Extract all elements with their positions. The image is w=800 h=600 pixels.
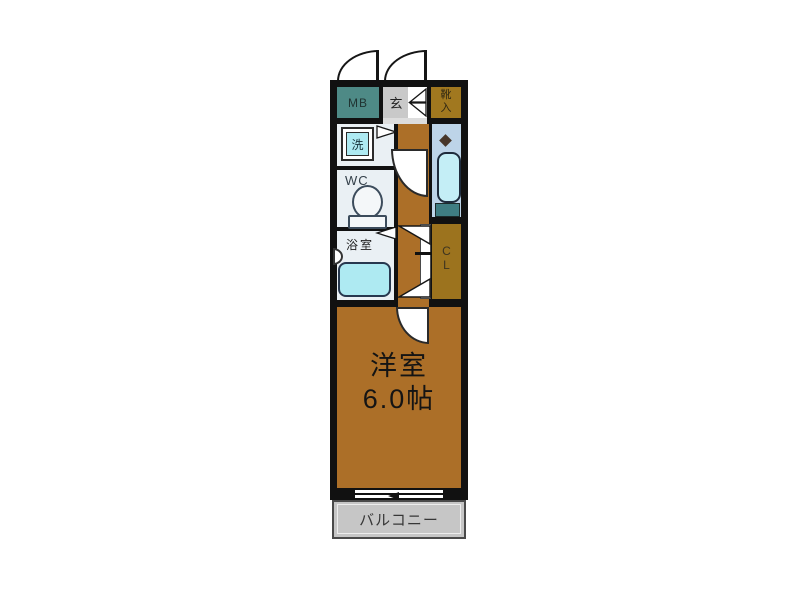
kitchen-unit: [432, 124, 461, 217]
closet-room: CL: [432, 224, 461, 299]
entrance-door-swing-icon: [337, 50, 379, 81]
entrance-label: 玄: [383, 87, 409, 118]
balcony-area: バルコニー: [332, 500, 466, 539]
double-door-wedge-icon: [408, 87, 427, 118]
washing-machine-icon: 洗: [341, 127, 374, 161]
shoe-cabinet-label: 靴入: [440, 89, 453, 115]
balcony-label: バルコニー: [359, 509, 439, 530]
door-wedge-icon: [376, 125, 397, 139]
door-wedge-icon: [398, 224, 431, 246]
kitchen-sink-icon: [437, 152, 461, 203]
floorplan-canvas: MB 玄 靴入 洗 WC 浴室 洋室 6.0帖 CL: [0, 0, 800, 600]
wc-room: WC: [337, 170, 394, 227]
door-wedge-icon: [398, 277, 431, 299]
front-door-swing-icon: [384, 50, 427, 81]
meter-box-room: MB: [337, 87, 379, 118]
kitchen-counter-icon: [435, 203, 460, 217]
meter-box-label: MB: [348, 96, 368, 110]
main-room-size: 6.0帖: [337, 383, 461, 416]
closet-door-swing-bottom: [398, 277, 431, 299]
door-wedge-icon: [375, 226, 397, 240]
shoe-cabinet-door-area: [408, 87, 427, 118]
window-slide-arrow-icon: [388, 492, 400, 500]
washing-machine-label: 洗: [346, 132, 369, 156]
toilet-icon: [352, 185, 383, 219]
closet-door-handle: [415, 252, 431, 255]
main-room-label: 洋室 6.0帖: [337, 350, 461, 416]
closet-door-swing-top: [398, 224, 431, 246]
bathtub-icon: [338, 262, 391, 297]
bathroom-door-swing: [375, 226, 397, 240]
laundry-door-swing: [376, 125, 397, 139]
stove-burner-icon: [439, 134, 452, 147]
shoe-cabinet-room: 靴入: [431, 87, 461, 118]
bathroom-label: 浴室: [346, 236, 374, 253]
closet-label: CL: [440, 244, 453, 272]
main-room-name: 洋室: [337, 350, 461, 383]
balcony-window: [355, 488, 443, 500]
